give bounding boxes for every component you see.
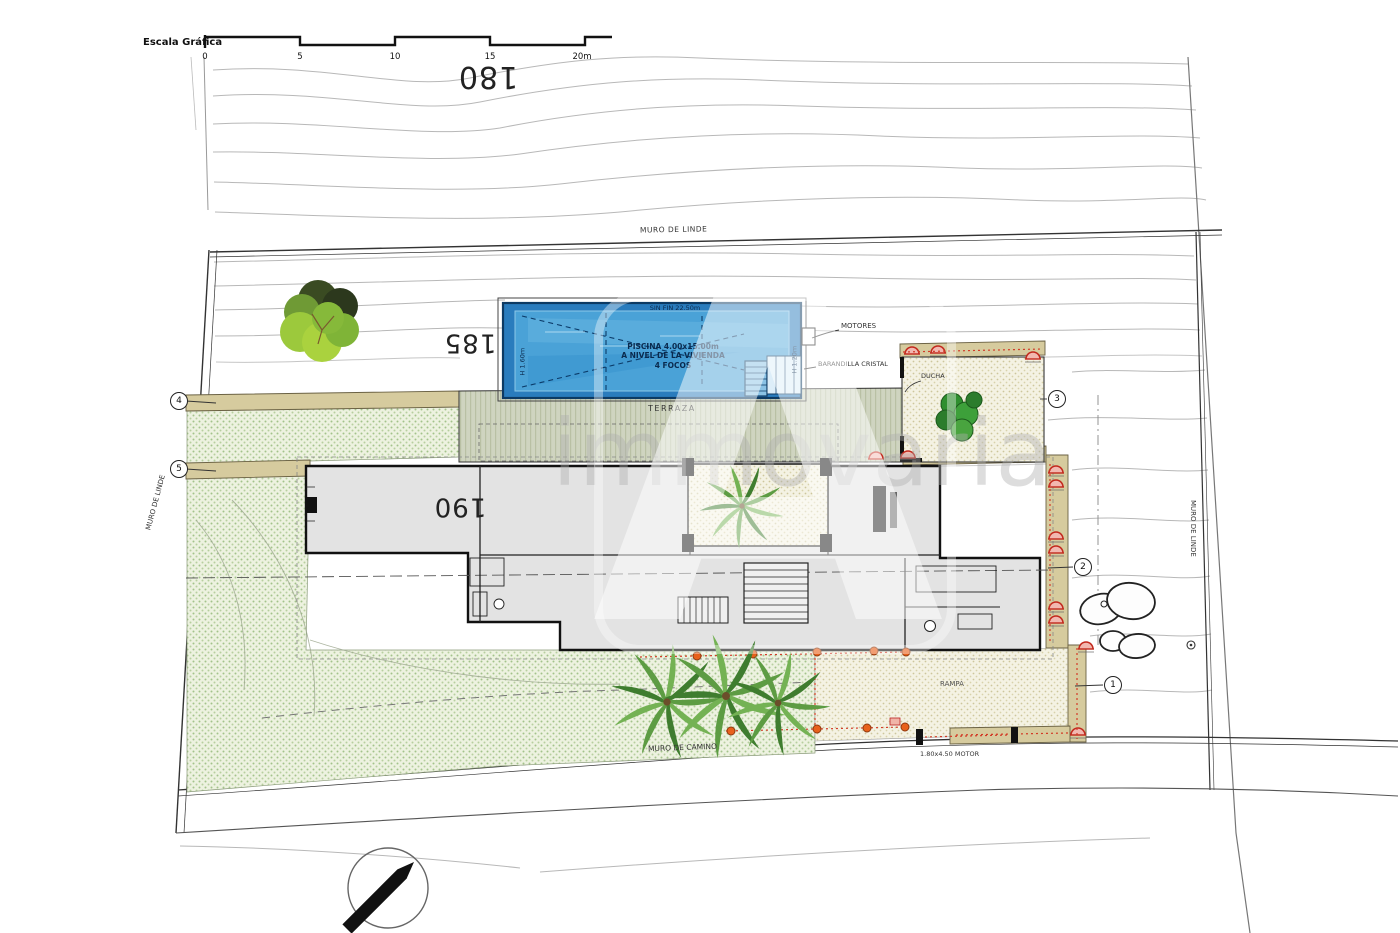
pool-title: PISCINA 4.00x15.00m <box>598 342 748 351</box>
pool-depth-right: H 1.20m <box>791 334 798 374</box>
survey-point-icon <box>1187 641 1195 649</box>
pool-lights: 4 FOCOS <box>598 361 748 370</box>
pool-edge-label: SIN FIN 22.50m <box>630 305 720 312</box>
terrace-label: TERRAZA <box>648 405 696 414</box>
ramp-label: RAMPA <box>940 681 964 689</box>
scale-bar-label: Escala Gráfica <box>143 37 222 48</box>
wall-label-top: MURO DE LINDE <box>640 225 708 234</box>
scale-tick-5: 5 <box>297 52 302 62</box>
scale-tick-10: 10 <box>390 52 401 62</box>
scale-tick-0: 0 <box>202 52 207 62</box>
pool-railing-label: BARANDILLA CRISTAL <box>818 361 888 368</box>
shower-label: DUCHA <box>921 373 945 380</box>
level-marker-5: 5 <box>170 460 188 478</box>
contour-label-190: 190 <box>428 492 492 521</box>
north-arrow-icon <box>342 848 428 933</box>
scale-tick-20: 20m <box>572 52 591 62</box>
plan-drawing <box>0 0 1400 933</box>
pool-motors-label: MOTORES <box>841 323 876 331</box>
wall-label-right: MURO DE LINDE <box>1188 500 1196 557</box>
contour-label-180: 180 <box>452 60 524 93</box>
pool-text-block: PISCINA 4.00x15.00m A NIVEL DE LA VIVIEN… <box>598 342 748 370</box>
pool-motor-box <box>802 328 815 345</box>
contour-label-185: 185 <box>438 328 502 357</box>
pool-subtitle: A NIVEL DE LA VIVIENDA <box>598 351 748 360</box>
level-marker-1: 1 <box>1104 676 1122 694</box>
building-footprint <box>186 457 1053 659</box>
site-plan-canvas: Escala Gráfica 0 5 10 15 20m 180 185 190… <box>0 0 1400 933</box>
level-marker-2: 2 <box>1074 558 1092 576</box>
gate-label: 1.80x4.50 MOTOR <box>920 751 979 758</box>
level-marker-4: 4 <box>170 392 188 410</box>
pool-depth-left: H 1.60m <box>519 336 526 376</box>
scale-bar <box>205 35 612 48</box>
tree-icon <box>280 280 359 362</box>
level-marker-3: 3 <box>1048 390 1066 408</box>
